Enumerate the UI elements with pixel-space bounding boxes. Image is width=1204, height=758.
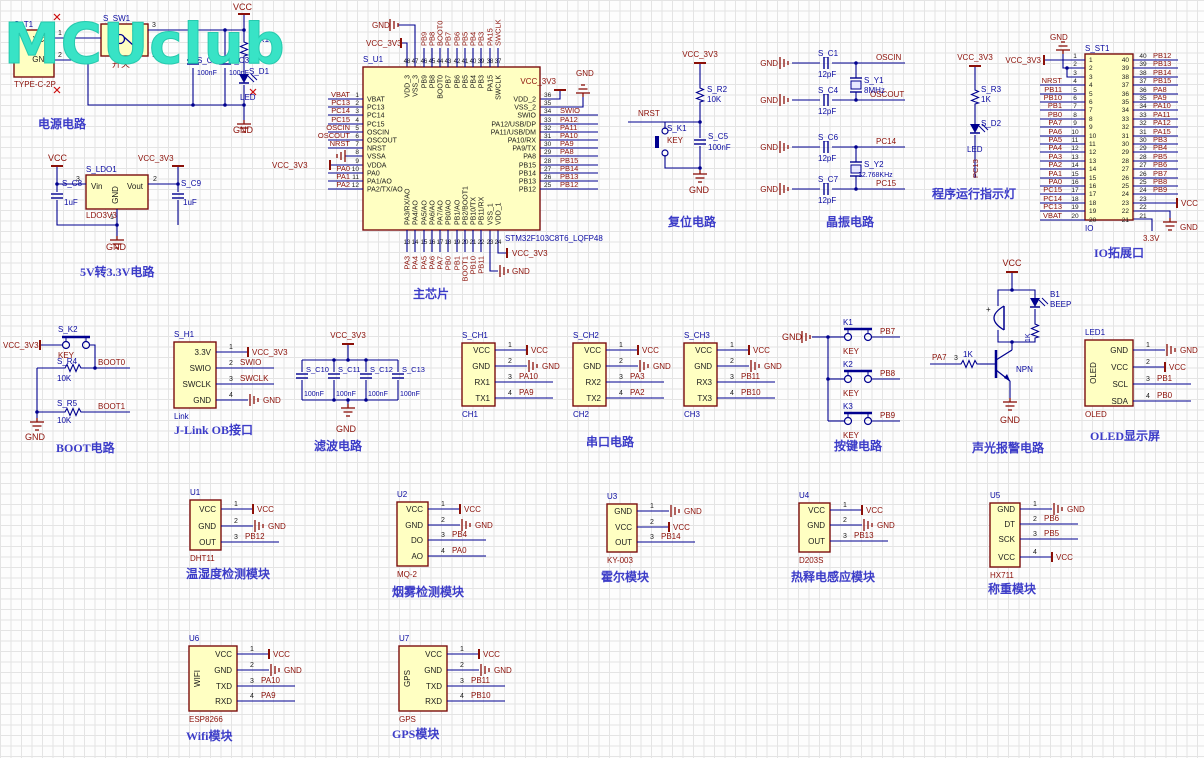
label: 2 <box>355 100 359 107</box>
label: S_C12 <box>370 365 393 374</box>
label: 2 <box>1089 65 1093 72</box>
label: 10 <box>1071 129 1079 136</box>
label: PB13 <box>1153 59 1171 68</box>
label: PB12 <box>519 187 536 194</box>
label: OUT <box>199 538 216 547</box>
label: 28 <box>1122 158 1130 165</box>
label: SWCLK <box>240 374 269 383</box>
label: SWIO <box>240 358 261 367</box>
label: PC15 <box>1043 185 1062 194</box>
label: 9 <box>355 158 359 165</box>
label: 32.768KHz <box>858 172 893 179</box>
label: 3 <box>1033 531 1037 538</box>
label: S_C9 <box>181 179 202 188</box>
label: GND <box>336 424 357 434</box>
label: VCC <box>215 650 232 659</box>
label: 1 <box>355 92 359 99</box>
label: RX1 <box>474 378 490 387</box>
label: 3 <box>460 678 464 685</box>
label: NRST <box>330 139 351 148</box>
label: 33 <box>1122 116 1130 123</box>
label: 12 <box>352 182 360 189</box>
label: 15 <box>1089 175 1097 182</box>
label: U3 <box>607 492 618 501</box>
label: 电源电路 <box>38 116 87 131</box>
label: PB7 <box>880 327 896 336</box>
label: BOOT电路 <box>56 440 116 455</box>
label: LED <box>240 93 256 102</box>
label: 38 <box>1139 70 1147 77</box>
wire <box>1133 219 1152 231</box>
label: 4 <box>229 392 233 399</box>
label: 25 <box>1122 183 1130 190</box>
label: 1 <box>1073 53 1077 60</box>
label: VCC_3V3 <box>252 348 288 357</box>
label: TYPE-C-2P <box>14 80 56 89</box>
section-ldo: VCCVCC_3V3S_LDO1VinVoutGND321S_C81uFS_C9… <box>48 153 202 279</box>
label: PA3 <box>630 372 645 381</box>
label: PB8 <box>430 75 437 88</box>
label: CH1 <box>462 410 479 419</box>
section-gps: U7GPSGPSVCC1VCCGND2GNDTXD3PB11RXD4PB10GP… <box>392 634 512 741</box>
label: VCC <box>1181 199 1198 208</box>
label: 17 <box>1071 187 1079 194</box>
section-reset: VCC_3V3S_R210KNRSTS_K1KEYS_C5100nFGND复位电… <box>628 50 731 229</box>
label: PB12 <box>245 532 265 541</box>
label: 26 <box>1122 175 1130 182</box>
label: WIFI <box>193 670 202 687</box>
label: 1 <box>250 646 254 653</box>
label: PA12/USB/DP <box>491 122 536 129</box>
label: VCC <box>199 505 216 514</box>
label: GND <box>25 432 46 442</box>
label: PB1/AO <box>455 199 462 225</box>
label: VDD_3 <box>405 75 412 98</box>
section-filter: VCC_3V3S_C10100nFS_C11100nFS_C12100nFS_C… <box>296 331 425 453</box>
label: 晶振电路 <box>826 214 875 229</box>
label: 48 <box>404 59 411 65</box>
label: 36 <box>1139 87 1147 94</box>
label: PB3 <box>477 32 486 46</box>
label: S_D2 <box>981 119 1002 128</box>
label: VCC_3V3 <box>138 154 174 163</box>
section-d203s: U4D203SVCC1VCCGND2GNDOUT3PB13热释电感应模块 <box>791 491 895 584</box>
label: 35 <box>544 100 552 107</box>
label: VCC_3V3 <box>1005 56 1041 65</box>
label: S_LDO1 <box>86 165 117 174</box>
label: PA10 <box>261 676 281 685</box>
label: 34 <box>544 108 552 115</box>
label: PA10 <box>519 372 539 381</box>
label: 14 <box>1089 166 1097 173</box>
label: VCC <box>584 346 601 355</box>
label: Wifi模块 <box>186 728 233 743</box>
label: GND <box>997 505 1015 514</box>
label: 11 <box>1089 141 1096 148</box>
label: VCC <box>464 505 481 514</box>
label: GND <box>214 666 232 675</box>
label: 热释电感应模块 <box>791 569 876 584</box>
label: 31 <box>1139 129 1147 136</box>
label: S_CH2 <box>573 331 599 340</box>
label: GND <box>764 362 782 371</box>
label: 29 <box>1122 149 1130 156</box>
label: LED1 <box>1085 328 1106 337</box>
section-boot: VCC_3V3S_K2KEYS_R410KBOOT0S_R510KBOOT1GN… <box>3 325 130 455</box>
label: S_Y2 <box>864 160 884 169</box>
label: 24 <box>1122 191 1130 198</box>
label: 32 <box>1139 120 1147 127</box>
label: 3 <box>730 374 734 381</box>
label: 18 <box>1089 200 1097 207</box>
label: VCC_3V3 <box>330 331 366 340</box>
label: 14 <box>1071 162 1079 169</box>
label: VCC_3V3 <box>520 77 556 86</box>
label: PB4 <box>1153 143 1167 152</box>
label: 22 <box>1122 208 1130 215</box>
label: KEY <box>843 389 860 398</box>
label: VSSA <box>367 154 386 161</box>
label: MQ-2 <box>397 570 418 579</box>
label: VSS_2 <box>514 105 536 112</box>
label: 3 <box>843 533 847 540</box>
label: HX711 <box>990 571 1014 580</box>
label: 7 <box>1073 103 1077 110</box>
label: 程序运行指示灯 <box>932 186 1016 201</box>
label: 15 <box>1071 171 1079 178</box>
label: AO <box>411 552 423 561</box>
label: U5 <box>990 491 1001 500</box>
label: GND <box>198 522 216 531</box>
label: PB12 <box>560 180 578 189</box>
label: GND <box>807 521 825 530</box>
label: 温湿度检测模块 <box>186 566 271 581</box>
label: 30 <box>1139 137 1147 144</box>
label: 5 <box>1073 87 1077 94</box>
label: 30 <box>1122 141 1130 148</box>
label: 18 <box>1071 196 1079 203</box>
label: GND <box>782 332 803 342</box>
label: 25 <box>1139 179 1147 186</box>
label: BOOT1 <box>98 402 126 411</box>
label: 2 <box>730 358 734 365</box>
label: 2 <box>843 517 847 524</box>
label: OSCIN <box>367 130 389 137</box>
section-oled: LED1OLEDOLEDGND1GNDVCC2VCCSCL3PB1SDA4PB0… <box>1085 328 1198 443</box>
label: GND <box>106 242 127 252</box>
label: VCC_3V3 <box>3 341 39 350</box>
label: PA2 <box>1048 160 1062 169</box>
label: NRST <box>638 109 660 118</box>
label: 1 <box>730 342 734 349</box>
label: VCC_3V3 <box>512 249 548 258</box>
label: VCC <box>642 346 659 355</box>
label: 8 <box>355 149 359 156</box>
label: S_C1 <box>818 49 839 58</box>
label: PA4/AO <box>413 200 420 225</box>
label: 2 <box>1033 516 1037 523</box>
label: 10K <box>707 95 722 104</box>
label: PA6/AO <box>430 200 437 225</box>
label: S_C8 <box>62 179 83 188</box>
label: PA4 <box>1048 143 1062 152</box>
label: 17 <box>1089 191 1097 198</box>
label: VCC <box>615 523 632 532</box>
label: 35 <box>1139 95 1147 102</box>
label: 串口电路 <box>586 434 635 449</box>
section-wifi: U6WIFIESP8266VCC1VCCGND2GNDTXD3PA10RXD4P… <box>186 634 302 743</box>
label: KY-003 <box>607 556 634 565</box>
label: 12pF <box>818 107 836 116</box>
label: 22 <box>1139 204 1147 211</box>
label: 23 <box>487 240 494 246</box>
label: 20 <box>1071 213 1079 220</box>
wire <box>89 345 95 368</box>
label: GND <box>1067 505 1085 514</box>
label: LED <box>967 145 983 154</box>
label: PA7 <box>1048 118 1062 127</box>
label: PB6 <box>455 75 462 88</box>
label: VBAT <box>367 97 385 104</box>
label: S_R5 <box>57 399 78 408</box>
label: PB10/TX <box>471 197 478 225</box>
label: 24 <box>495 240 502 246</box>
label: 34 <box>1122 107 1130 114</box>
section-ioport: S_ST1IO140140VCC_3V3PB12239239PB13338338… <box>1005 33 1198 260</box>
label: 10 <box>352 166 360 173</box>
label: RXD <box>215 697 232 706</box>
label: VDD_1 <box>496 202 503 225</box>
label: J-Link OB接口 <box>174 422 253 437</box>
label: NPN <box>1016 365 1033 374</box>
section-hx711: U5HX711GND1GNDDT2PB6SCK3PB5VCC4VCC称重模块 <box>988 491 1085 596</box>
label: 2 <box>650 519 654 526</box>
label: PA12 <box>1153 118 1171 127</box>
label: 5V转3.3V电路 <box>80 264 155 279</box>
label: BOOT0 <box>438 75 445 99</box>
label: PB14 <box>661 532 681 541</box>
label: PB5 <box>463 75 470 88</box>
label: 称重模块 <box>988 581 1037 596</box>
label: D203S <box>799 556 823 565</box>
label: VCC <box>695 346 712 355</box>
label: GND <box>111 186 120 204</box>
label: GND <box>475 521 493 530</box>
label: PB4 <box>471 75 478 88</box>
label: 20 <box>1089 217 1097 224</box>
label: VDDA <box>367 163 387 170</box>
label: PA5/AO <box>422 200 429 225</box>
label: 47 <box>412 59 419 65</box>
label: ESP8266 <box>189 715 223 724</box>
label: SWCLK <box>496 75 503 100</box>
label: 12 <box>1071 145 1079 152</box>
label: PB11 <box>471 676 491 685</box>
label: 8 <box>1073 112 1077 119</box>
label: GND <box>760 59 778 68</box>
label: PB15 <box>1153 76 1171 85</box>
label: GND <box>877 521 895 530</box>
label: SWIO <box>560 106 580 115</box>
label: S_K1 <box>667 124 687 133</box>
label: GPS <box>403 670 412 687</box>
label: SCK <box>999 535 1016 544</box>
label: 40 <box>1122 57 1130 64</box>
label: PA10 <box>1153 101 1171 110</box>
label: GND <box>1180 223 1198 232</box>
label: 4 <box>1033 549 1037 556</box>
label: PB8 <box>880 369 896 378</box>
label: PB1 <box>1157 374 1173 383</box>
label: 2 <box>619 358 623 365</box>
label: 31 <box>1122 133 1130 140</box>
label: GND <box>614 507 632 516</box>
label: SWCLK <box>494 19 503 46</box>
label: PB0/AO <box>446 199 453 225</box>
label: TXD <box>426 682 442 691</box>
label: NRST <box>367 146 387 153</box>
label: 1 <box>619 342 623 349</box>
label: GND <box>263 396 281 405</box>
label: Vin <box>91 182 102 191</box>
label: PB14 <box>519 171 536 178</box>
label: DO <box>411 536 423 545</box>
label: 1 <box>229 344 233 351</box>
label: 8MHz <box>864 86 885 95</box>
section-alarm: VCCB1BEEP1K+PA731KNPNGND声光报警电路 <box>930 258 1071 455</box>
label: VCC <box>257 505 274 514</box>
label: GND <box>1180 346 1198 355</box>
label: S_R3 <box>981 85 1002 94</box>
label: PB2/BOOT1 <box>463 186 470 225</box>
label: LDO3V3 <box>86 211 117 220</box>
label: GPS模块 <box>392 726 440 741</box>
label: 12pF <box>818 196 836 205</box>
label: SCL <box>1112 380 1128 389</box>
label: PA9 <box>261 691 276 700</box>
label: 100nF <box>336 391 356 398</box>
label: 13 <box>1089 158 1097 165</box>
label: 36 <box>544 92 552 99</box>
label: OUT <box>615 538 632 547</box>
section-ky003: U3KY-003GND1GNDVCC2VCCOUT3PB14霍尔模块 <box>601 492 702 584</box>
label: GND <box>653 362 671 371</box>
label: KEY <box>667 136 684 145</box>
label: VCC_3V3 <box>957 53 993 62</box>
label: PB11 <box>741 372 761 381</box>
label: OLED <box>1085 410 1107 419</box>
label: GND <box>233 125 254 135</box>
label: PA2/TX/AO <box>367 187 403 194</box>
label: VCC <box>406 505 423 514</box>
label: 1 <box>441 501 445 508</box>
label: PB7 <box>444 32 453 46</box>
label: 28 <box>1139 154 1147 161</box>
label: PA8 <box>523 154 536 161</box>
label: VCC <box>1056 553 1073 562</box>
label: 36 <box>1122 91 1130 98</box>
label: 主芯片 <box>413 286 449 301</box>
label: PA0 <box>452 546 467 555</box>
label: Link <box>174 412 190 421</box>
label: S_C11 <box>338 365 360 374</box>
label: 16 <box>1089 183 1097 190</box>
label: 4 <box>730 390 734 397</box>
label: OLED显示屏 <box>1090 429 1160 443</box>
label: 13 <box>1071 154 1079 161</box>
label: 16 <box>1071 179 1079 186</box>
label: PA11/USB/DM <box>491 130 536 137</box>
label: 6 <box>1089 99 1093 106</box>
wire <box>998 290 1012 306</box>
label: 3 <box>650 534 654 541</box>
label: VCC <box>473 346 490 355</box>
label: 27 <box>544 166 552 173</box>
label: BOOT0 <box>98 358 126 367</box>
label: 3 <box>234 534 238 541</box>
label: 1K <box>963 350 973 359</box>
label: 10K <box>57 374 72 383</box>
wire <box>998 330 1012 342</box>
label: 6 <box>1073 95 1077 102</box>
label: S_R2 <box>707 85 728 94</box>
label: GND <box>689 185 710 195</box>
label: 2 <box>1146 359 1150 366</box>
label: GND <box>268 522 286 531</box>
label: U4 <box>799 491 810 500</box>
label: DT <box>1004 520 1015 529</box>
label: PB1 <box>1048 101 1062 110</box>
label: GND <box>694 362 712 371</box>
label: PC14 <box>876 137 897 146</box>
schematic-canvas[interactable]: S_T1VCCGND12TYPE-C-2PS_SW1开关31S_C2100nFS… <box>0 0 1204 758</box>
label: 2 <box>460 662 464 669</box>
label: 1 <box>650 503 654 510</box>
label: PC13 <box>367 105 385 112</box>
label: S_C13 <box>402 365 425 374</box>
label: 28 <box>544 158 552 165</box>
label: 10K <box>57 416 72 425</box>
label: 滤波电路 <box>314 438 363 453</box>
label: 6 <box>355 133 359 140</box>
label: CH3 <box>684 410 701 419</box>
label: PB13 <box>519 179 536 186</box>
label: 1 <box>1033 501 1037 508</box>
label: PA7/AO <box>438 200 445 225</box>
label: PB9 <box>880 411 896 420</box>
label: SWIO <box>190 364 211 373</box>
label: TX3 <box>697 394 712 403</box>
label: 4 <box>355 117 359 124</box>
label: 4 <box>1146 393 1150 400</box>
label: U6 <box>189 634 200 643</box>
label: GND <box>472 362 490 371</box>
label: 按键电路 <box>834 438 883 453</box>
section-buttons: GNDK1KEYPB7K2KEYPB8K3KEYPB9按键电路 <box>782 318 900 453</box>
label: 8 <box>1089 116 1093 123</box>
label: S_C6 <box>818 133 839 142</box>
label: GND <box>760 143 778 152</box>
label: PA4 <box>411 256 420 270</box>
label: 1K <box>1025 333 1032 342</box>
label: PA10/RX <box>508 138 537 145</box>
label: S_K2 <box>58 325 78 334</box>
label: 26 <box>544 174 552 181</box>
label: 5 <box>1089 91 1093 98</box>
label: 2 <box>1073 61 1077 68</box>
label: GND <box>684 507 702 516</box>
label: S_H1 <box>174 330 195 339</box>
